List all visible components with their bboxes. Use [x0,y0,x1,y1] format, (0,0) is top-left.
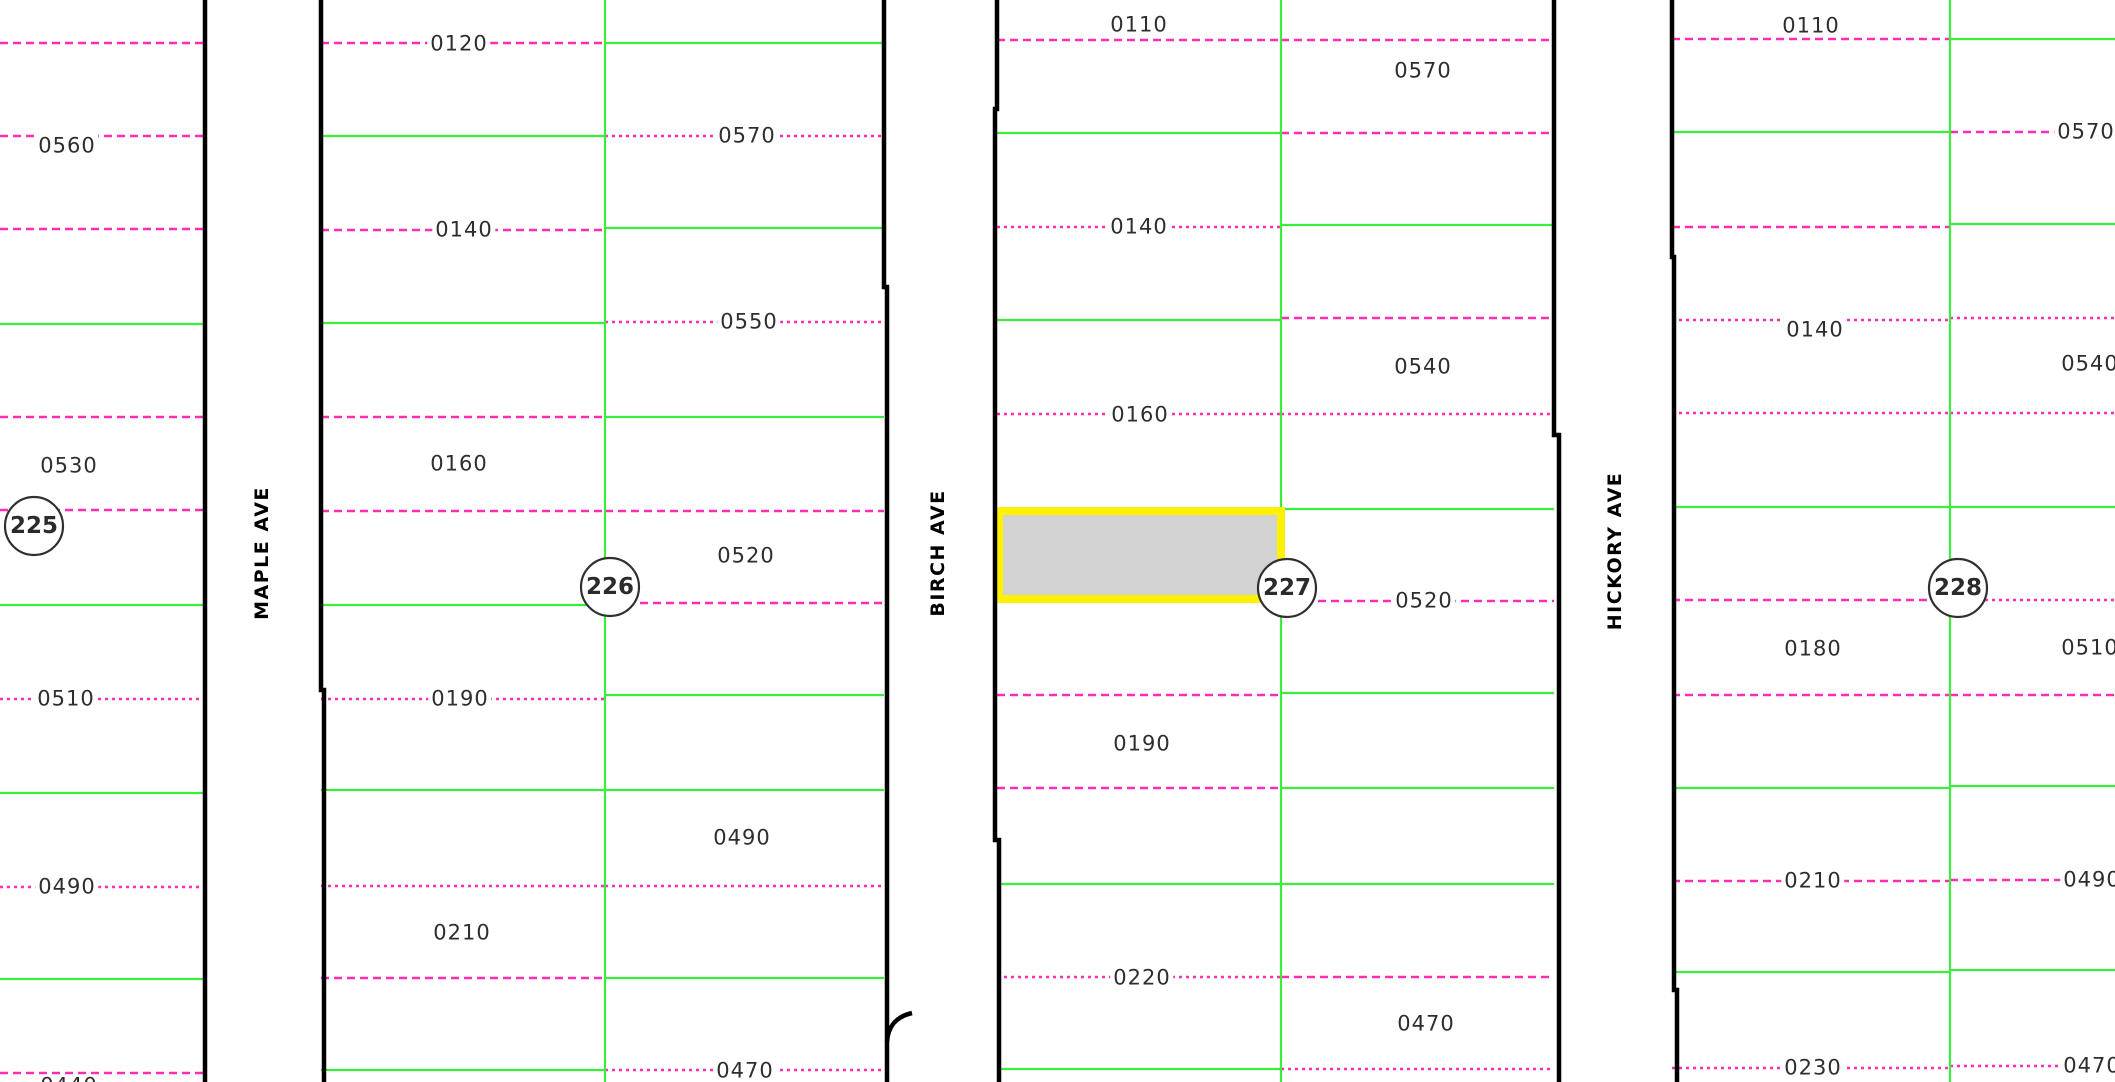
block-number-label: 226 [586,574,634,600]
lot-number-label: 0520 [1392,589,1455,612]
highlighted-parcel[interactable] [999,511,1281,599]
lot-number-label: 0220 [1110,966,1173,989]
lot-number-label: 0510 [34,687,97,710]
lot-number-label: 0530 [37,454,100,477]
lot-number-label: 0160 [1108,403,1171,426]
lot-number-label: 0230 [1781,1056,1844,1079]
lot-number-label: 0120 [427,32,490,55]
lot-number-label: 0110 [1107,13,1170,36]
lot-number-label: 0440 [37,1074,100,1082]
lot-number-label: 0540 [2058,352,2115,375]
lot-number-label: 0570 [2054,120,2115,143]
parcel-map-canvas[interactable]: 2252262272280560053005100490044001200570… [0,0,2115,1082]
lot-number-label: 0520 [714,544,777,567]
street-edge-line [1554,0,1559,1082]
lot-number-label: 0210 [1781,869,1844,892]
street-name-label: HICKORY AVE [1604,472,1626,631]
lot-number-label: 0110 [1779,14,1842,37]
lot-number-label: 0550 [717,310,780,333]
lot-number-label: 0490 [710,826,773,849]
street-edge-line [321,0,324,1082]
lot-number-label: 0140 [1783,318,1846,341]
lot-number-label: 0570 [715,124,778,147]
lot-number-label: 0490 [35,875,98,898]
lot-number-label: 0190 [428,687,491,710]
lot-number-label: 0470 [713,1059,776,1082]
lot-number-label: 0560 [35,134,98,157]
street-name-label: MAPLE AVE [251,486,273,620]
street-edge-line [1672,0,1677,1082]
lot-number-label: 0540 [1391,355,1454,378]
lot-number-label: 0470 [2060,1054,2115,1077]
map-layers: 225226227228 [0,0,2115,1082]
lot-number-label: 0190 [1110,732,1173,755]
block-number-label: 227 [1263,575,1311,601]
street-edge-line [887,1013,912,1042]
lot-number-label: 0490 [2060,868,2115,891]
lot-number-label: 0470 [1394,1012,1457,1035]
street-edge-line [884,0,887,1082]
block-number-label: 228 [1934,575,1982,601]
lot-number-label: 0140 [1107,215,1170,238]
lot-number-label: 0160 [427,452,490,475]
street-name-label: BIRCH AVE [927,489,949,616]
lot-number-label: 0180 [1781,637,1844,660]
lot-number-label: 0510 [2058,636,2115,659]
lot-number-label: 0570 [1391,59,1454,82]
block-number-label: 225 [10,513,58,539]
lot-number-label: 0140 [432,218,495,241]
lot-number-label: 0210 [430,921,493,944]
